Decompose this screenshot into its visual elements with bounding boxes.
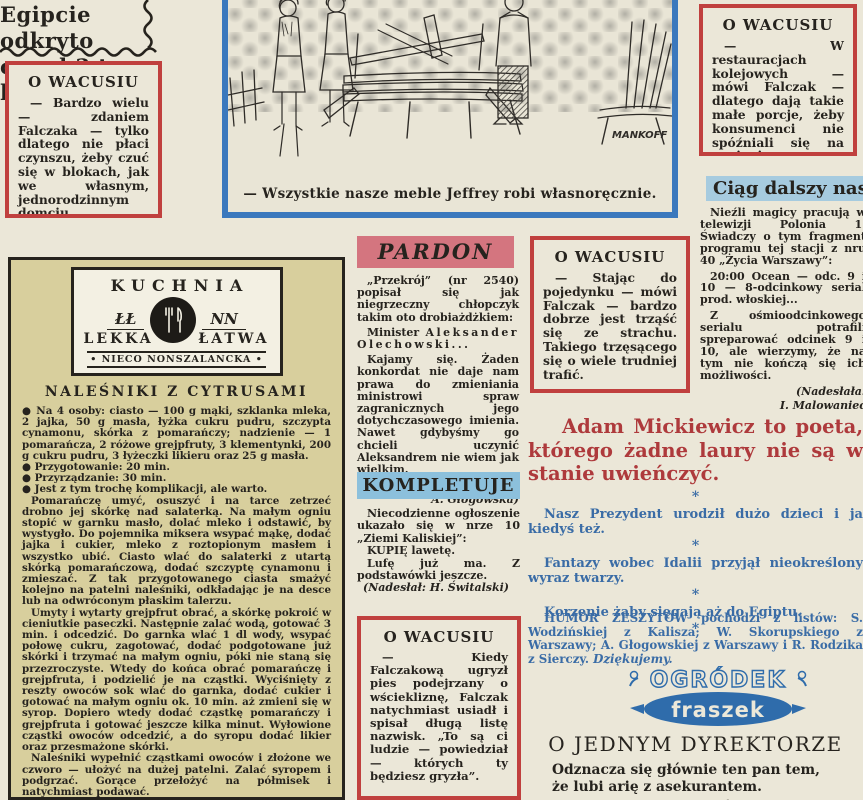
ciag-para2: 20:00 Ocean — odc. 9 i 10 — 8-odcinkowy …	[700, 271, 863, 307]
mickiewicz-heading: Adam Mickiewicz to poeta, którego żadne …	[528, 415, 863, 486]
o-wacusiu-box-4: O WACUSIU — Kiedy Falczakową ugryzł pies…	[357, 616, 521, 800]
kompletuje-article: Niecodzienne ogłoszenie ukazało się w nr…	[357, 508, 520, 595]
cartoon-signature: MANKOFF	[612, 130, 668, 141]
kuchnia-logo-title: KUCHNIA	[87, 276, 274, 295]
o-wacusiu-text: — Bardzo wielu — zdaniem Falczaka — tylk…	[18, 96, 149, 218]
o-wacusiu-box-1: O WACUSIU — Bardzo wielu — zdaniem Falcz…	[5, 61, 162, 218]
pardon-para1: „Przekrój” (nr 2540) popisał się jak nie…	[357, 275, 519, 324]
o-wacusiu-text: — Kiedy Falczakową ugryzł pies podejrzan…	[370, 651, 508, 783]
cartoon-drawing: MANKOFF	[228, 0, 672, 184]
recipe-note: ● Jest z tym trochę komplikacji, ale war…	[22, 484, 331, 495]
humor-line-2: Fantazy wobec Idalii przyjął nieokreślon…	[528, 556, 863, 586]
ciag-dalszy-heading: Ciąg dalszy nastąpi	[706, 176, 863, 201]
recipe-body: ● Na 4 osoby: ciasto — 100 g mąki, szkla…	[22, 406, 331, 798]
dyrektor-line-2: że lubi arię z asekurantem.	[528, 779, 863, 796]
o-wacusiu-box-3: O WACUSIU — Stając do pojedynku — mówi F…	[530, 236, 690, 393]
kompletuje-heading: KOMPLETUJE	[357, 472, 520, 499]
wavy-border	[0, 0, 170, 64]
kompletuje-para1: Niecodzienne ogłoszenie ukazało się w nr…	[357, 508, 520, 545]
o-wacusiu-text: — Stając do pojedynku — mówi Falczak — b…	[543, 271, 677, 381]
o-wacusiu-box-2: O WACUSIU — W restauracjach kolejowych —…	[699, 4, 857, 156]
recipe-step-2: Umyty i wytarty grejpfrut obrać, a skórk…	[22, 608, 331, 754]
ciag-credit-2: I. Malowaniec	[700, 400, 863, 413]
dyrektor-section: O JEDNYM DYREKTORZE Odznacza się głównie…	[528, 732, 863, 800]
svg-text:fraszek: fraszek	[671, 698, 765, 722]
star-separator: *	[528, 540, 863, 553]
kuchnia-recipe-box: KUCHNIA ŁŁ NN LEKKA ŁATWA • NIECO NONS	[8, 257, 345, 800]
kuchnia-logo: KUCHNIA ŁŁ NN LEKKA ŁATWA • NIECO NONS	[71, 267, 283, 376]
kuchnia-logo-lekka: LEKKA	[84, 331, 154, 347]
cartoon-caption: — Wszystkie nasze meble Jeffrey robi wła…	[228, 184, 672, 207]
newspaper-page: Egipcie odkryto orzed 3 tys. lat. O WACU…	[0, 0, 863, 800]
humor-line-1: Nasz Prezydent urodził dużo dzieci i ja …	[528, 507, 863, 537]
humor-credit-note: HUMOR ZESZYTÓW pochodzi z listów: S. Wod…	[528, 612, 863, 666]
star-separator: *	[528, 589, 863, 602]
ciag-para3: Z ośmioodcinkowego serialu potrafili spr…	[700, 310, 863, 381]
dyrektor-title: O JEDNYM DYREKTORZE	[528, 732, 863, 756]
dyrektor-line-1: Odznacza się głównie ten pan tem,	[528, 762, 863, 779]
recipe-heading: NALEŚNIKI Z CYTRUSAMI	[22, 384, 331, 400]
ogrodek-fraszek-logo: OGRÓDEK fraszek	[608, 666, 828, 734]
kuchnia-logo-script-right: NN	[202, 310, 245, 330]
cartoon-panel: MANKOFF — Wszystkie nasze meble Jeffrey …	[222, 0, 678, 218]
star-separator: *	[528, 491, 863, 504]
kuchnia-logo-subtitle: • NIECO NONSZALANCKA •	[87, 351, 266, 368]
kompletuje-credit: (Nadesłał: H. Świtalski)	[357, 582, 520, 595]
o-wacusiu-title: O WACUSIU	[712, 16, 844, 34]
ciag-credit-1: (Nadesłała:	[700, 386, 863, 399]
o-wacusiu-title: O WACUSIU	[370, 628, 508, 646]
recipe-ingredients: ● Na 4 osoby: ciasto — 100 g mąki, szkla…	[22, 406, 331, 462]
kuchnia-logo-script-left: ŁŁ	[107, 310, 144, 330]
o-wacusiu-title: O WACUSIU	[543, 248, 677, 266]
o-wacusiu-text: — W restauracjach kolejowych — mówi Falc…	[712, 39, 844, 156]
pardon-minister-line: Minister Aleksander Olechowski...	[357, 327, 519, 351]
pardon-para3: Kajamy się. Żaden konkordat nie daje nam…	[357, 354, 519, 476]
ciag-dalszy-article: Nieźli magicy pracują w telewizji Poloni…	[700, 207, 863, 413]
kompletuje-para2: Lufę już ma. Z podstawówki jeszcze.	[357, 558, 520, 583]
ciag-para1: Nieźli magicy pracują w telewizji Poloni…	[700, 207, 863, 267]
o-wacusiu-title: O WACUSIU	[18, 73, 149, 91]
pardon-heading: PARDON	[357, 236, 514, 268]
kuchnia-logo-latwa: ŁATWA	[198, 331, 269, 347]
svg-text:OGRÓDEK: OGRÓDEK	[650, 667, 787, 693]
kompletuje-ad-line: KUPIĘ lawetę.	[357, 545, 520, 557]
recipe-step-3: Naleśniki wypełnić cząstkami owoców i zł…	[22, 753, 331, 798]
recipe-step-1: Pomarańczę umyć, osuszyć i na tarce zetr…	[22, 496, 331, 608]
